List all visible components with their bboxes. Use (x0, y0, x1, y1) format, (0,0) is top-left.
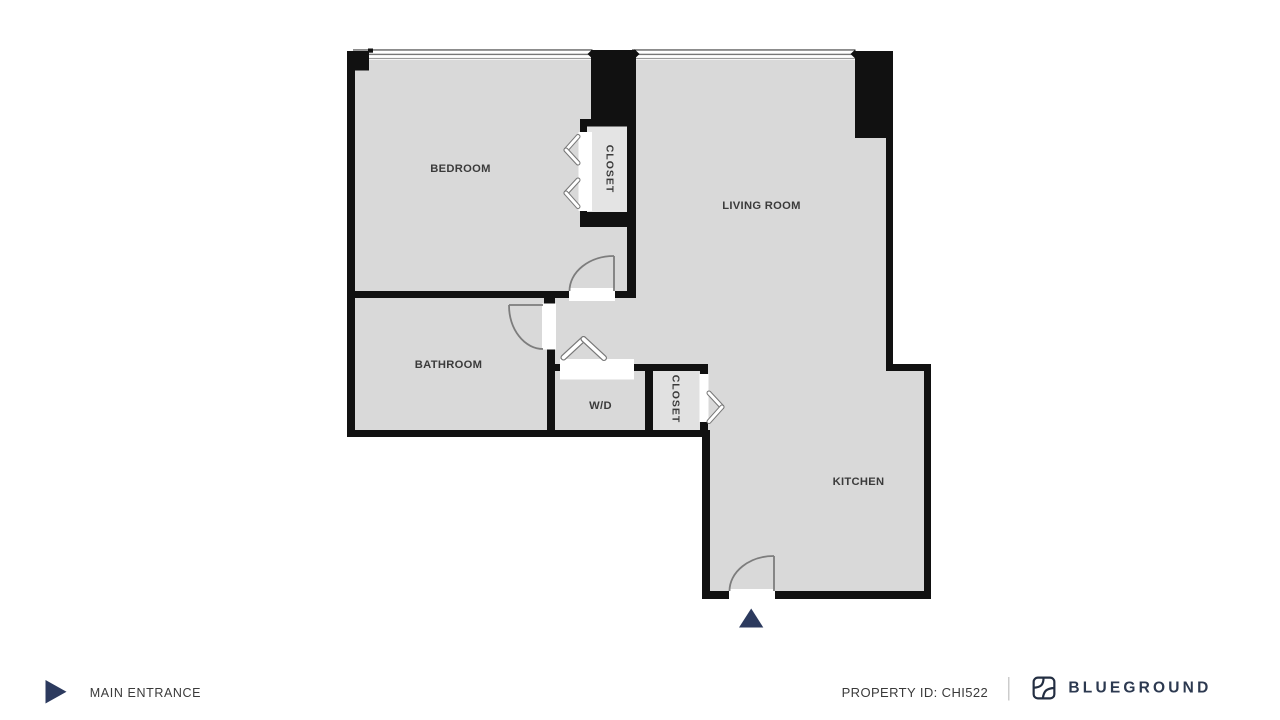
svg-text:PROPERTY ID: CHI522: PROPERTY ID: CHI522 (842, 685, 989, 700)
svg-text:KITCHEN: KITCHEN (833, 476, 885, 488)
svg-text:BEDROOM: BEDROOM (430, 163, 491, 175)
svg-text:LIVING ROOM: LIVING ROOM (722, 200, 801, 212)
svg-text:CLOSET: CLOSET (670, 375, 682, 424)
svg-text:MAIN ENTRANCE: MAIN ENTRANCE (90, 686, 201, 700)
svg-text:BLUEGROUND: BLUEGROUND (1068, 680, 1211, 697)
svg-text:BATHROOM: BATHROOM (415, 359, 482, 371)
svg-text:W/D: W/D (589, 400, 612, 412)
svg-text:CLOSET: CLOSET (604, 145, 616, 194)
